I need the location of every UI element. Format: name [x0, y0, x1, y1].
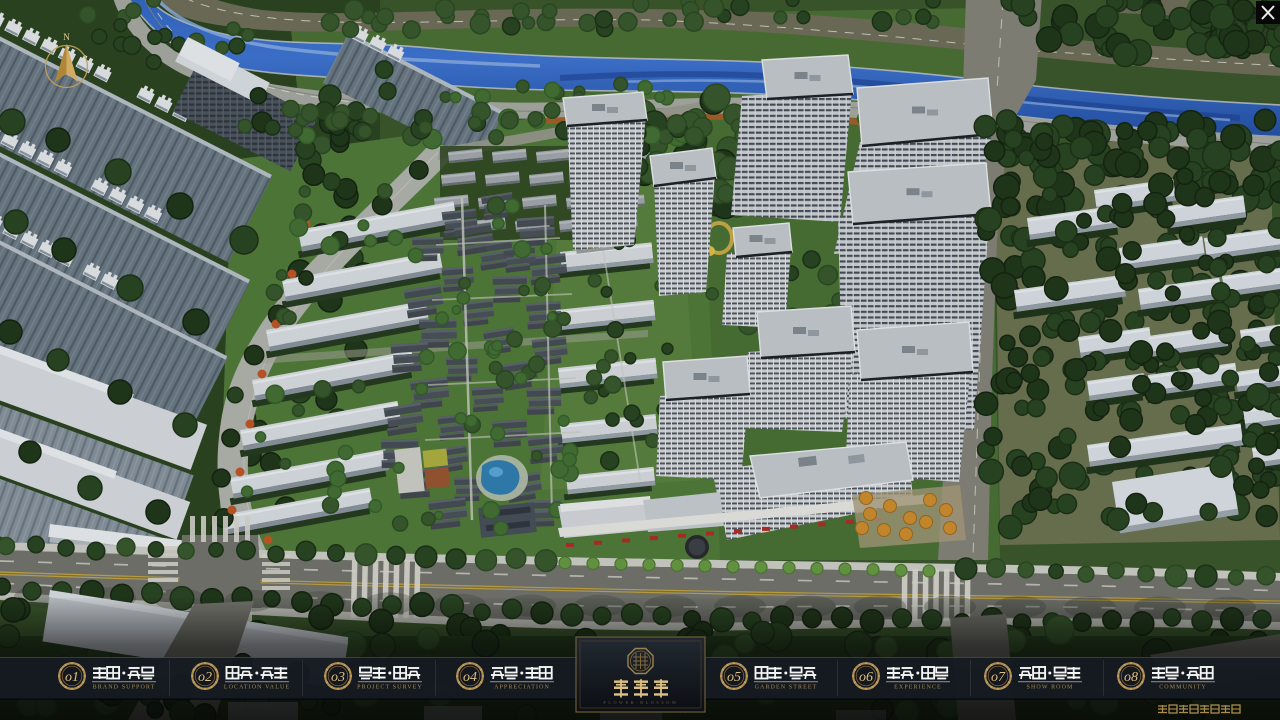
svg-text:o2: o2 [198, 670, 212, 685]
svg-text:N: N [63, 32, 70, 42]
svg-text:o6: o6 [859, 670, 873, 685]
svg-text:GARDEN STREET: GARDEN STREET [755, 685, 818, 691]
svg-text:SHOW ROOM: SHOW ROOM [1027, 685, 1074, 691]
svg-text:LOCATION VALUE: LOCATION VALUE [224, 685, 290, 691]
svg-text:o7: o7 [991, 670, 1006, 685]
svg-text:APPRECIATION: APPRECIATION [494, 685, 550, 691]
svg-text:o1: o1 [65, 670, 79, 685]
svg-text:o3: o3 [331, 670, 345, 685]
svg-text:PROJECT SURVEY: PROJECT SURVEY [357, 685, 423, 691]
svg-text:BRAND SUPPORT: BRAND SUPPORT [93, 685, 156, 691]
svg-text:o4: o4 [463, 670, 477, 685]
svg-text:o8: o8 [1124, 670, 1138, 685]
svg-text:COMMUNITY: COMMUNITY [1159, 685, 1207, 691]
svg-text:EXPERIENCE: EXPERIENCE [894, 685, 942, 691]
svg-text:o5: o5 [727, 670, 741, 685]
svg-text:F L O W E R · B L O S S O M: F L O W E R · B L O S S O M [603, 700, 676, 705]
